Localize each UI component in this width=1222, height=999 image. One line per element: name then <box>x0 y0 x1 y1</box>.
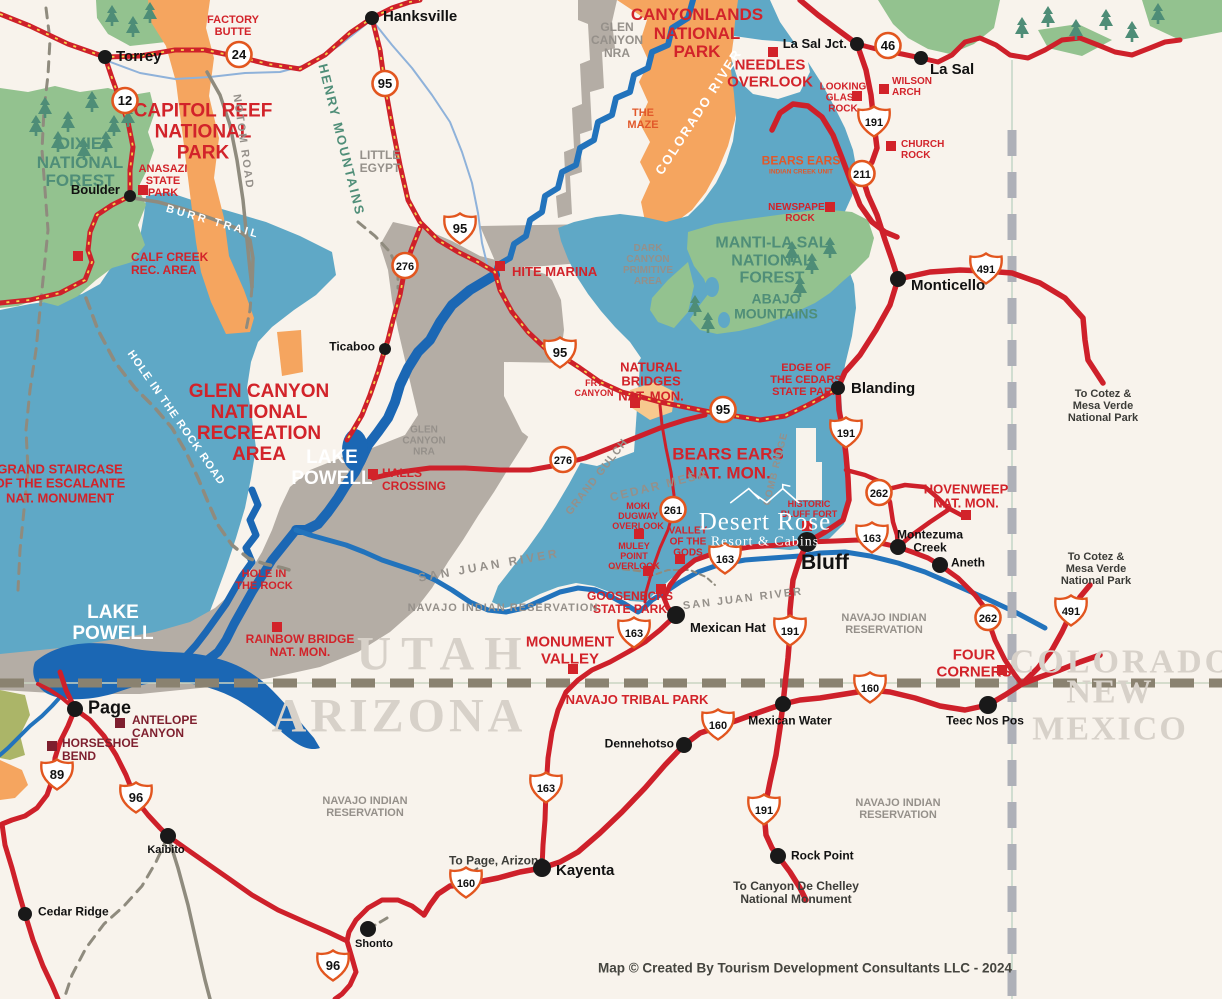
svg-text:191: 191 <box>755 805 773 817</box>
map-label: NEEDLES OVERLOOK <box>727 58 813 91</box>
map-label: FACTORY BUTTE <box>207 14 259 38</box>
town-dot-la-sal-jct- <box>850 37 864 51</box>
map-label: CALF CREEK REC. AREA <box>131 251 208 277</box>
route-shield-95: 95 <box>542 336 578 374</box>
town-label: Mexican Hat <box>690 621 766 635</box>
route-shield-262: 262 <box>864 478 894 513</box>
route-shield-163: 163 <box>616 616 652 654</box>
map-label: COLORADO <box>1010 643 1222 680</box>
map-label: FRY CANYON <box>574 379 613 399</box>
map-label: RAINBOW BRIDGE NAT. MON. <box>246 633 355 659</box>
svg-text:191: 191 <box>837 428 855 440</box>
town-label: Rock Point <box>791 850 854 863</box>
map-label: NATURAL BRIDGES NAT. MON. <box>618 361 683 404</box>
halls-crossing-marker <box>368 469 378 479</box>
town-dot-bluff <box>797 532 817 552</box>
map-label: THE MAZE <box>627 107 658 131</box>
town-dot-boulder <box>124 190 136 202</box>
town-label: La Sal Jct. <box>783 37 847 51</box>
map-label: NAVAJO INDIAN RESERVATION <box>408 602 599 614</box>
town-dot-torrey <box>98 50 112 64</box>
wilson-arch-marker <box>879 84 889 94</box>
town-dot-dennehotso <box>676 737 692 753</box>
hovenweep-marker <box>961 510 971 520</box>
svg-text:211: 211 <box>853 169 871 181</box>
map-label: MANTI-LA SAL NATIONAL FOREST <box>715 235 828 288</box>
map-label: To Cotez & Mesa Verde National Park <box>1061 551 1131 587</box>
svg-text:95: 95 <box>716 402 730 417</box>
monument-valley-marker <box>568 664 578 674</box>
svg-text:96: 96 <box>326 958 340 973</box>
town-label: Boulder <box>71 183 120 197</box>
newspaper-rock-marker <box>825 202 835 212</box>
map-label: CANYONLANDS NATIONAL PARK <box>631 6 763 62</box>
town-dot-kayenta <box>533 859 551 877</box>
map-label: NEWSPAPER ROCK <box>768 202 832 224</box>
town-dot-kaibito <box>160 828 176 844</box>
hite-marina-marker <box>495 261 505 271</box>
route-shield-160: 160 <box>700 708 736 746</box>
map-label: GLEN CANYON NATIONAL RECREATION AREA <box>189 382 329 466</box>
map-label: FOUR CORNERS <box>936 648 1011 681</box>
route-shield-95: 95 <box>708 395 738 430</box>
svg-text:191: 191 <box>781 626 799 638</box>
town-dot-rock-point <box>770 848 786 864</box>
label-layer: FACTORY BUTTECAPITOL REEF NATIONAL PARKC… <box>0 0 1222 999</box>
map-label: CHURCH ROCK <box>901 139 944 161</box>
route-shield-96: 96 <box>315 949 351 987</box>
svg-text:491: 491 <box>1062 606 1080 618</box>
map-label: To Canyon De Chelley National Monument <box>733 880 859 906</box>
map-label: HENRY MOUNTAINS <box>315 63 367 218</box>
horseshoe-bend-marker <box>47 741 57 751</box>
map-label: MOKI DUGWAY OVERLOOK <box>612 502 664 532</box>
town-dot-mexican-hat <box>667 606 685 624</box>
svg-text:262: 262 <box>870 488 888 500</box>
route-shield-191: 191 <box>856 105 892 143</box>
map-label: LITTLE EGYPT <box>360 149 401 175</box>
town-label: Shonto <box>355 939 393 951</box>
svg-text:24: 24 <box>232 47 247 62</box>
route-shield-89: 89 <box>39 758 75 796</box>
map-label: NAVAJO INDIAN RESERVATION <box>855 797 940 821</box>
town-dot-hanksville <box>365 11 379 25</box>
route-shield-96: 96 <box>118 781 154 819</box>
route-shield-163: 163 <box>707 542 743 580</box>
svg-text:163: 163 <box>716 554 734 566</box>
town-label: Ticaboo <box>329 341 375 354</box>
route-shield-46: 46 <box>873 31 903 66</box>
route-shield-160: 160 <box>448 866 484 904</box>
map-label: COMB RIDGE <box>762 431 791 506</box>
town-label: Aneth <box>951 557 985 570</box>
svg-text:262: 262 <box>979 613 997 625</box>
map-label: HITE MARINA <box>512 265 597 279</box>
svg-text:261: 261 <box>664 505 682 517</box>
map-label: INDIAN CREEK UNIT <box>769 168 833 175</box>
route-shield-95: 95 <box>370 69 400 104</box>
four-corners-marker <box>997 665 1007 675</box>
town-dot-aneth <box>932 557 948 573</box>
svg-text:160: 160 <box>457 878 475 890</box>
valley-of-the-gods-marker <box>675 554 685 564</box>
map-label: To Cotez & Mesa Verde National Park <box>1068 388 1138 424</box>
map-label: BEARS EARS NAT. MON. <box>672 445 783 482</box>
route-shield-95: 95 <box>442 212 478 250</box>
map-label: MONUMENT VALLEY <box>526 635 614 668</box>
town-dot-blanding <box>831 381 845 395</box>
map-label: HOVENWEEP NAT. MON. <box>924 483 1009 512</box>
town-dot-monticello <box>890 271 906 287</box>
town-label: Cedar Ridge <box>38 906 109 919</box>
map-label: NEW MEXICO <box>1032 674 1188 749</box>
map-label: NAVAJO INDIAN RESERVATION <box>841 612 926 636</box>
route-shield-191: 191 <box>746 793 782 831</box>
historic-bluff-fort-marker <box>802 521 812 531</box>
map-label: CAPITOL REEF NATIONAL PARK <box>134 102 273 165</box>
calf-creek-marker <box>73 251 83 261</box>
town-label: Mexican Water <box>748 715 832 728</box>
looking-glass-rock-marker <box>852 91 862 101</box>
town-dot-cedar-ridge <box>18 907 32 921</box>
svg-text:160: 160 <box>861 683 879 695</box>
map-label: COLORADO RIVER <box>653 46 745 177</box>
town-dot-shonto <box>360 921 376 937</box>
svg-text:491: 491 <box>977 264 995 276</box>
svg-text:12: 12 <box>118 93 132 108</box>
svg-text:163: 163 <box>625 628 643 640</box>
town-label: Kayenta <box>556 863 614 879</box>
route-shield-491: 491 <box>1053 594 1089 632</box>
svg-text:163: 163 <box>863 533 881 545</box>
route-shield-276: 276 <box>390 251 420 286</box>
town-dot-la-sal <box>914 51 928 65</box>
svg-text:95: 95 <box>453 221 467 236</box>
svg-text:276: 276 <box>554 455 572 467</box>
town-dot-teec-nos-pos <box>979 696 997 714</box>
route-shield-163: 163 <box>528 771 564 809</box>
svg-text:163: 163 <box>537 783 555 795</box>
map-label: ANTELOPE CANYON <box>132 714 197 740</box>
route-shield-491: 491 <box>968 252 1004 290</box>
anasazi-state-park-marker <box>138 185 148 195</box>
map-label: UTAH <box>356 629 531 682</box>
map-label: HOLE IN THE ROCK <box>235 568 292 592</box>
map-label: BURR TRAIL <box>165 203 262 241</box>
needles-overlook-marker <box>768 47 778 57</box>
town-label: Teec Nos Pos <box>946 715 1024 728</box>
route-shield-262: 262 <box>973 603 1003 638</box>
svg-text:191: 191 <box>865 117 883 129</box>
map-label: DARK CANYON PRIMITIVE AREA <box>623 243 673 287</box>
town-dot-page <box>67 701 83 717</box>
town-dot-mexican-water <box>775 696 791 712</box>
town-label: Montezuma Creek <box>897 528 963 553</box>
map-label: NAVAJO INDIAN RESERVATION <box>322 795 407 819</box>
four-corners-region-map: FACTORY BUTTECAPITOL REEF NATIONAL PARKC… <box>0 0 1222 999</box>
map-label: WILSON ARCH <box>892 76 932 98</box>
svg-text:276: 276 <box>396 261 414 273</box>
svg-text:46: 46 <box>881 38 895 53</box>
route-shield-24: 24 <box>224 40 254 75</box>
map-label: GLEN CANYON NRA <box>402 425 445 458</box>
moki-dugway-marker <box>634 529 644 539</box>
map-label: HOLE IN THE ROCK ROAD <box>125 348 228 487</box>
town-label: Torrey <box>116 49 162 65</box>
map-label: ARIZONA <box>272 691 527 744</box>
map-label: ABAJO MOUNTAINS <box>734 292 818 323</box>
svg-text:160: 160 <box>709 720 727 732</box>
map-label: EDGE OF THE CEDARS STATE PARK <box>770 362 842 398</box>
rainbow-bridge-marker <box>272 622 282 632</box>
town-label: Blanding <box>851 381 915 397</box>
svg-text:95: 95 <box>378 76 392 91</box>
route-shield-211: 211 <box>847 159 877 194</box>
muley-point-marker <box>643 566 653 576</box>
town-label: Dennehotso <box>605 738 674 751</box>
antelope-canyon-marker <box>115 718 125 728</box>
map-label: BEARS EARS <box>762 154 841 167</box>
town-label: La Sal <box>930 62 974 78</box>
natural-bridges-marker <box>630 398 640 408</box>
svg-text:95: 95 <box>553 345 567 360</box>
map-label: LAKE POWELL <box>291 448 372 490</box>
town-label: Hanksville <box>383 9 457 25</box>
route-shield-261: 261 <box>658 495 688 530</box>
map-label: NOTOM ROAD <box>230 94 255 191</box>
route-shield-12: 12 <box>110 86 140 121</box>
svg-text:89: 89 <box>50 767 64 782</box>
route-shield-191: 191 <box>772 614 808 652</box>
town-label: Kaibito <box>147 845 184 857</box>
map-label: SAN JUAN RIVER <box>682 586 803 613</box>
goosenecks-marker <box>656 584 666 594</box>
map-label: GRAND STAIRCASE OF THE ESCALANTE NAT. MO… <box>0 463 125 506</box>
route-shield-163: 163 <box>854 521 890 559</box>
route-shield-160: 160 <box>852 671 888 709</box>
town-dot-ticaboo <box>379 343 391 355</box>
map-label: HALLS CROSSING <box>382 467 446 493</box>
map-label: GLEN CANYON NRA <box>591 21 643 61</box>
map-label: SAN JUAN RIVER <box>417 547 560 585</box>
route-shield-276: 276 <box>548 445 578 480</box>
route-shield-191: 191 <box>828 416 864 454</box>
map-label: NAVAJO TRIBAL PARK <box>566 693 709 707</box>
map-label: HISTORIC BLUFF FORT <box>781 500 838 520</box>
town-label: Page <box>88 699 131 718</box>
svg-text:96: 96 <box>129 790 143 805</box>
map-label: Map © Created By Tourism Development Con… <box>598 962 1012 977</box>
town-label: Bluff <box>801 552 849 574</box>
map-label: LAKE POWELL <box>72 603 153 645</box>
